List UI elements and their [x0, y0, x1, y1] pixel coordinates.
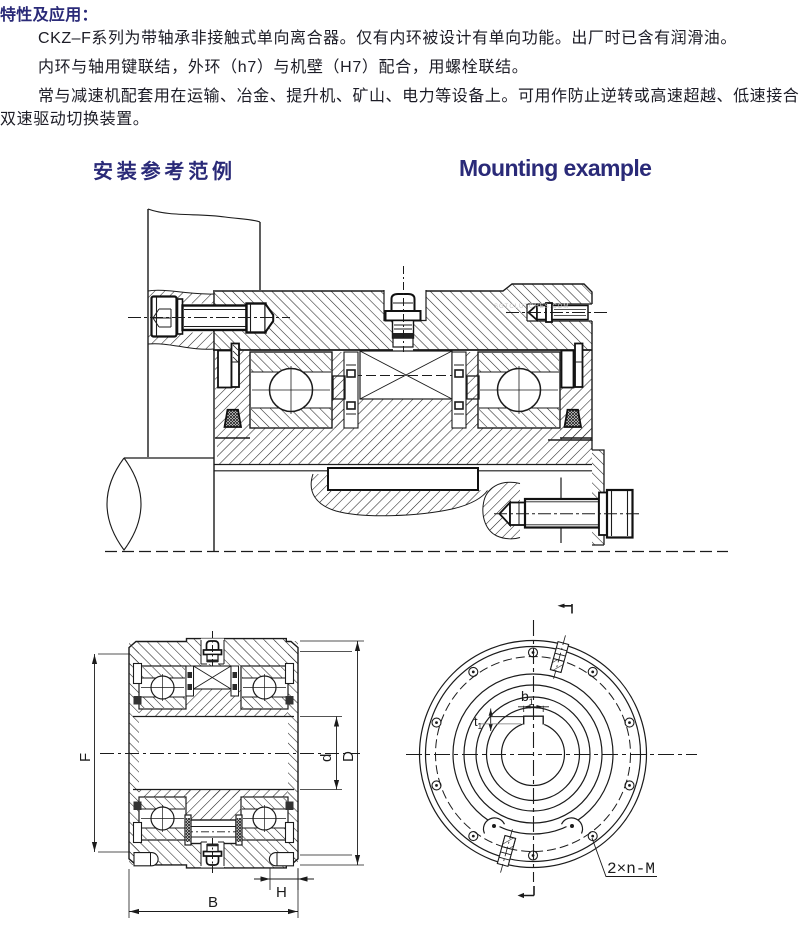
svg-text:d: d: [318, 754, 335, 762]
svg-text:B: B: [208, 894, 218, 911]
svg-text:F: F: [77, 753, 94, 762]
svg-text:2×n-M: 2×n-M: [607, 860, 655, 878]
svg-text:SGTCLUTCHES.COM: SGTCLUTCHES.COM: [494, 304, 569, 310]
svg-text:H: H: [276, 884, 287, 901]
svg-text:D: D: [340, 751, 357, 762]
svg-text:b1: b1: [521, 688, 534, 707]
svg-text:t1: t1: [474, 714, 483, 731]
